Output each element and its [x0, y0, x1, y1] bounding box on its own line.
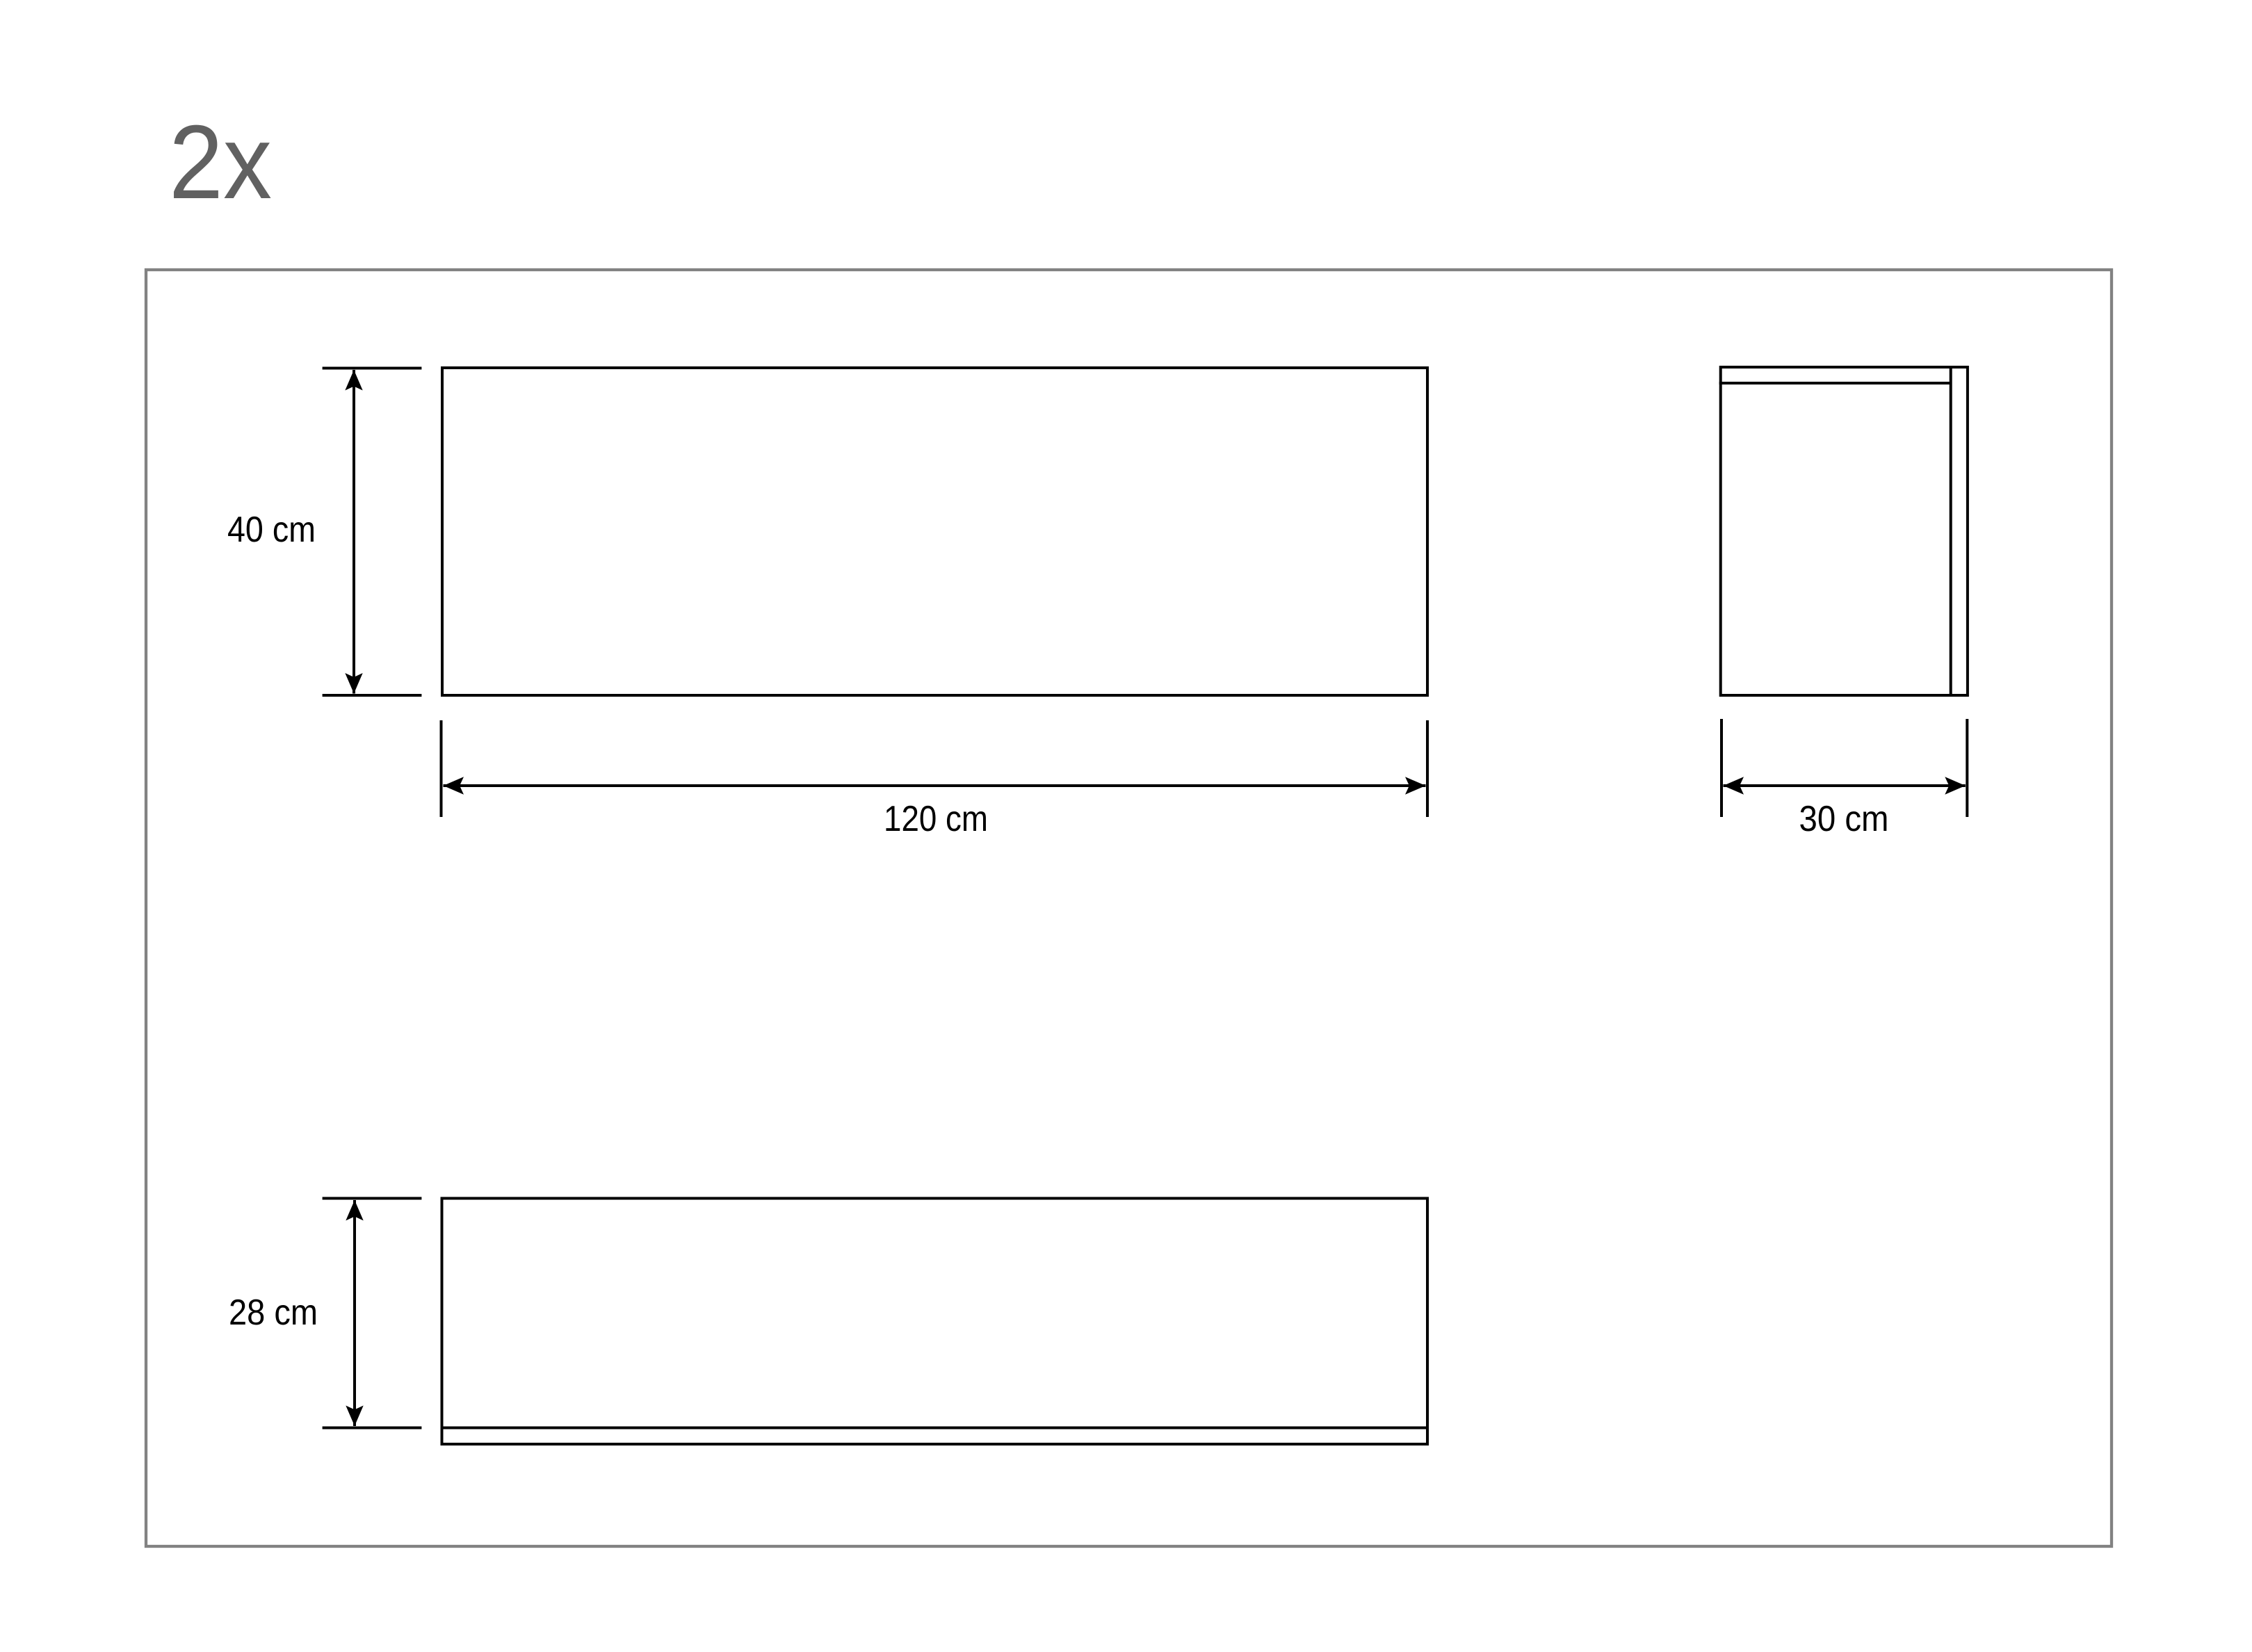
- svg-text:120 cm: 120 cm: [884, 799, 988, 839]
- svg-text:28 cm: 28 cm: [229, 1293, 318, 1333]
- svg-text:2x: 2x: [169, 103, 272, 220]
- svg-text:30 cm: 30 cm: [1799, 799, 1889, 839]
- svg-text:40 cm: 40 cm: [227, 510, 316, 550]
